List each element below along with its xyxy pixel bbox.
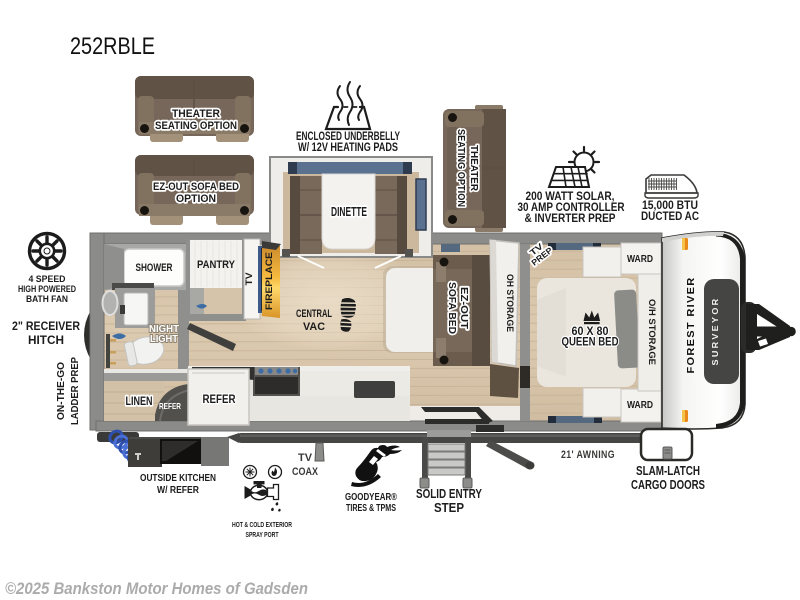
svg-text:HOT & COLD EXTERIOR: HOT & COLD EXTERIOR: [232, 522, 292, 529]
svg-text:LINEN: LINEN: [126, 396, 153, 408]
svg-text:COAX: COAX: [292, 466, 319, 478]
svg-text:SLAM-LATCH: SLAM-LATCH: [636, 464, 700, 478]
svg-text:BATH FAN: BATH FAN: [26, 294, 68, 305]
svg-text:TV: TV: [298, 452, 313, 464]
svg-text:ON-THE-GO: ON-THE-GO: [55, 362, 67, 420]
svg-text:WARD: WARD: [627, 400, 653, 411]
svg-text:EZ-OUT: EZ-OUT: [458, 287, 469, 329]
svg-text:REFER: REFER: [159, 401, 181, 411]
svg-text:TIRES & TPMS: TIRES & TPMS: [346, 502, 396, 514]
svg-text:21' AWNING: 21' AWNING: [561, 449, 615, 461]
svg-text:VAC: VAC: [303, 321, 325, 333]
svg-text:REFER: REFER: [203, 394, 237, 406]
svg-text:252RBLE: 252RBLE: [70, 33, 155, 60]
svg-text:& INVERTER PREP: & INVERTER PREP: [525, 213, 616, 225]
svg-text:FIREPLACE: FIREPLACE: [264, 252, 275, 310]
svg-text:SEATING OPTION: SEATING OPTION: [455, 129, 467, 207]
svg-text:SURVEYOR: SURVEYOR: [711, 297, 720, 366]
svg-text:THEATER: THEATER: [172, 108, 220, 120]
svg-text:©2025 Bankston Motor Homes of: ©2025 Bankston Motor Homes of Gadsden: [5, 580, 308, 598]
svg-text:W/ REFER: W/ REFER: [157, 484, 199, 496]
svg-text:CARGO DOORS: CARGO DOORS: [631, 478, 705, 492]
svg-text:OH STORAGE: OH STORAGE: [504, 274, 515, 332]
svg-text:SPRAY PORT: SPRAY PORT: [246, 532, 280, 539]
svg-text:SHOWER: SHOWER: [136, 262, 173, 274]
svg-text:DINETTE: DINETTE: [331, 205, 367, 219]
svg-text:FOREST RIVER: FOREST RIVER: [686, 277, 697, 374]
svg-text:STEP: STEP: [434, 501, 464, 515]
svg-text:DUCTED AC: DUCTED AC: [641, 211, 699, 223]
svg-text:SEATING OPTION: SEATING OPTION: [155, 120, 237, 132]
svg-text:QUEEN BED: QUEEN BED: [562, 335, 619, 349]
svg-text:SOLID ENTRY: SOLID ENTRY: [416, 487, 483, 501]
svg-text:EZ-OUT SOFA BED: EZ-OUT SOFA BED: [153, 181, 239, 193]
svg-text:W/ 12V HEATING PADS: W/ 12V HEATING PADS: [298, 142, 398, 154]
svg-text:HITCH: HITCH: [28, 333, 64, 347]
svg-text:THEATER: THEATER: [468, 145, 480, 191]
svg-text:TV: TV: [244, 272, 255, 286]
svg-text:CENTRAL: CENTRAL: [296, 308, 332, 320]
svg-text:SOFA BED: SOFA BED: [446, 282, 457, 334]
svg-text:WARD: WARD: [627, 254, 653, 265]
svg-text:OPTION: OPTION: [176, 193, 216, 205]
svg-text:O/H STORAGE: O/H STORAGE: [646, 299, 657, 365]
svg-text:OUTSIDE KITCHEN: OUTSIDE KITCHEN: [140, 472, 216, 484]
svg-text:PANTRY: PANTRY: [197, 259, 236, 271]
svg-text:LADDER PREP: LADDER PREP: [69, 357, 81, 425]
svg-text:2" RECEIVER: 2" RECEIVER: [12, 319, 80, 333]
svg-text:LIGHT: LIGHT: [150, 334, 178, 345]
